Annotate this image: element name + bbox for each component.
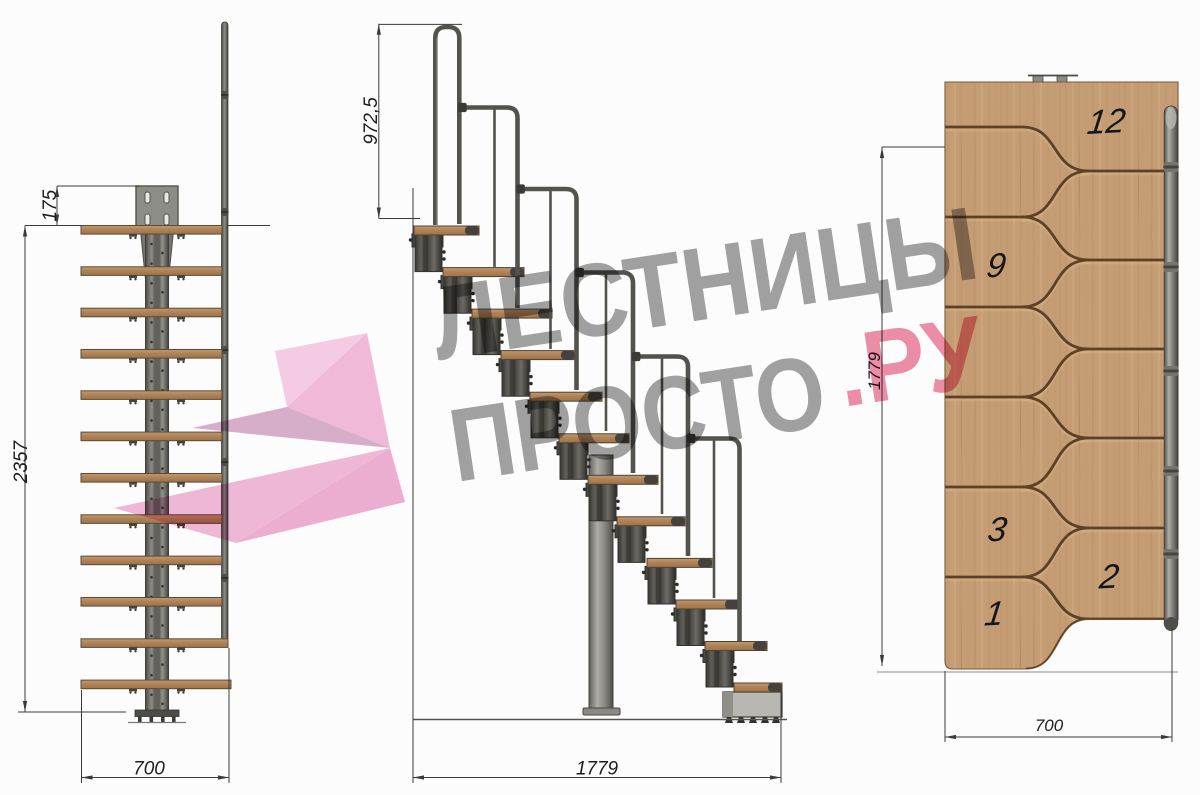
svg-text:.РУ: .РУ	[829, 294, 992, 429]
svg-text:700: 700	[133, 759, 165, 780]
svg-text:700: 700	[1035, 716, 1064, 735]
svg-text:1779: 1779	[576, 759, 619, 780]
svg-text:2357: 2357	[11, 439, 32, 484]
svg-text:175: 175	[40, 189, 61, 221]
svg-text:972,5: 972,5	[361, 97, 382, 145]
svg-text:12: 12	[1085, 102, 1127, 142]
